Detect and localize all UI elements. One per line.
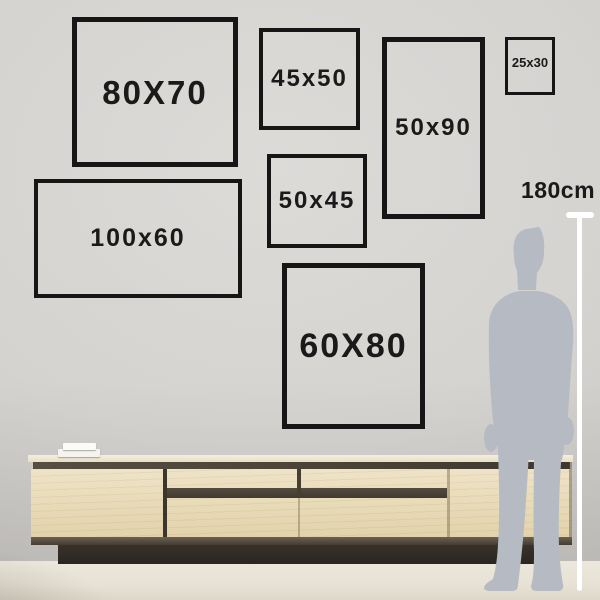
person-silhouette <box>478 224 580 594</box>
console-middle-divider-lower <box>298 498 300 537</box>
size-frame-80x70: 80X70 <box>72 17 238 167</box>
decor-book-top <box>63 443 96 450</box>
console-left-door-divider <box>163 469 167 537</box>
console-middle-divider <box>297 469 301 498</box>
size-frame-50x45: 50x45 <box>267 154 367 248</box>
ruler-vertical-line <box>577 213 582 591</box>
size-label: 50x90 <box>395 116 472 140</box>
size-frame-45x50: 45x50 <box>259 28 360 130</box>
decor-book-bottom <box>58 449 100 457</box>
console-drawer-groove <box>167 488 447 498</box>
height-label: 180cm <box>518 177 598 204</box>
size-frame-60x80: 60X80 <box>282 263 425 429</box>
size-label: 60X80 <box>299 329 407 363</box>
size-label: 45x50 <box>271 67 348 91</box>
console-right-divider <box>447 469 450 537</box>
size-label: 25x30 <box>512 40 548 69</box>
wall-art-size-guide-scene: 80X7045x5050x9025x30100x6050x4560X80 <box>0 0 600 600</box>
size-frame-100x60: 100x60 <box>34 179 242 298</box>
size-label: 100x60 <box>90 226 185 251</box>
size-frame-50x90: 50x90 <box>382 37 485 219</box>
size-frame-25x30: 25x30 <box>505 37 555 95</box>
size-label: 50x45 <box>279 189 356 213</box>
size-label: 80X70 <box>102 76 207 109</box>
